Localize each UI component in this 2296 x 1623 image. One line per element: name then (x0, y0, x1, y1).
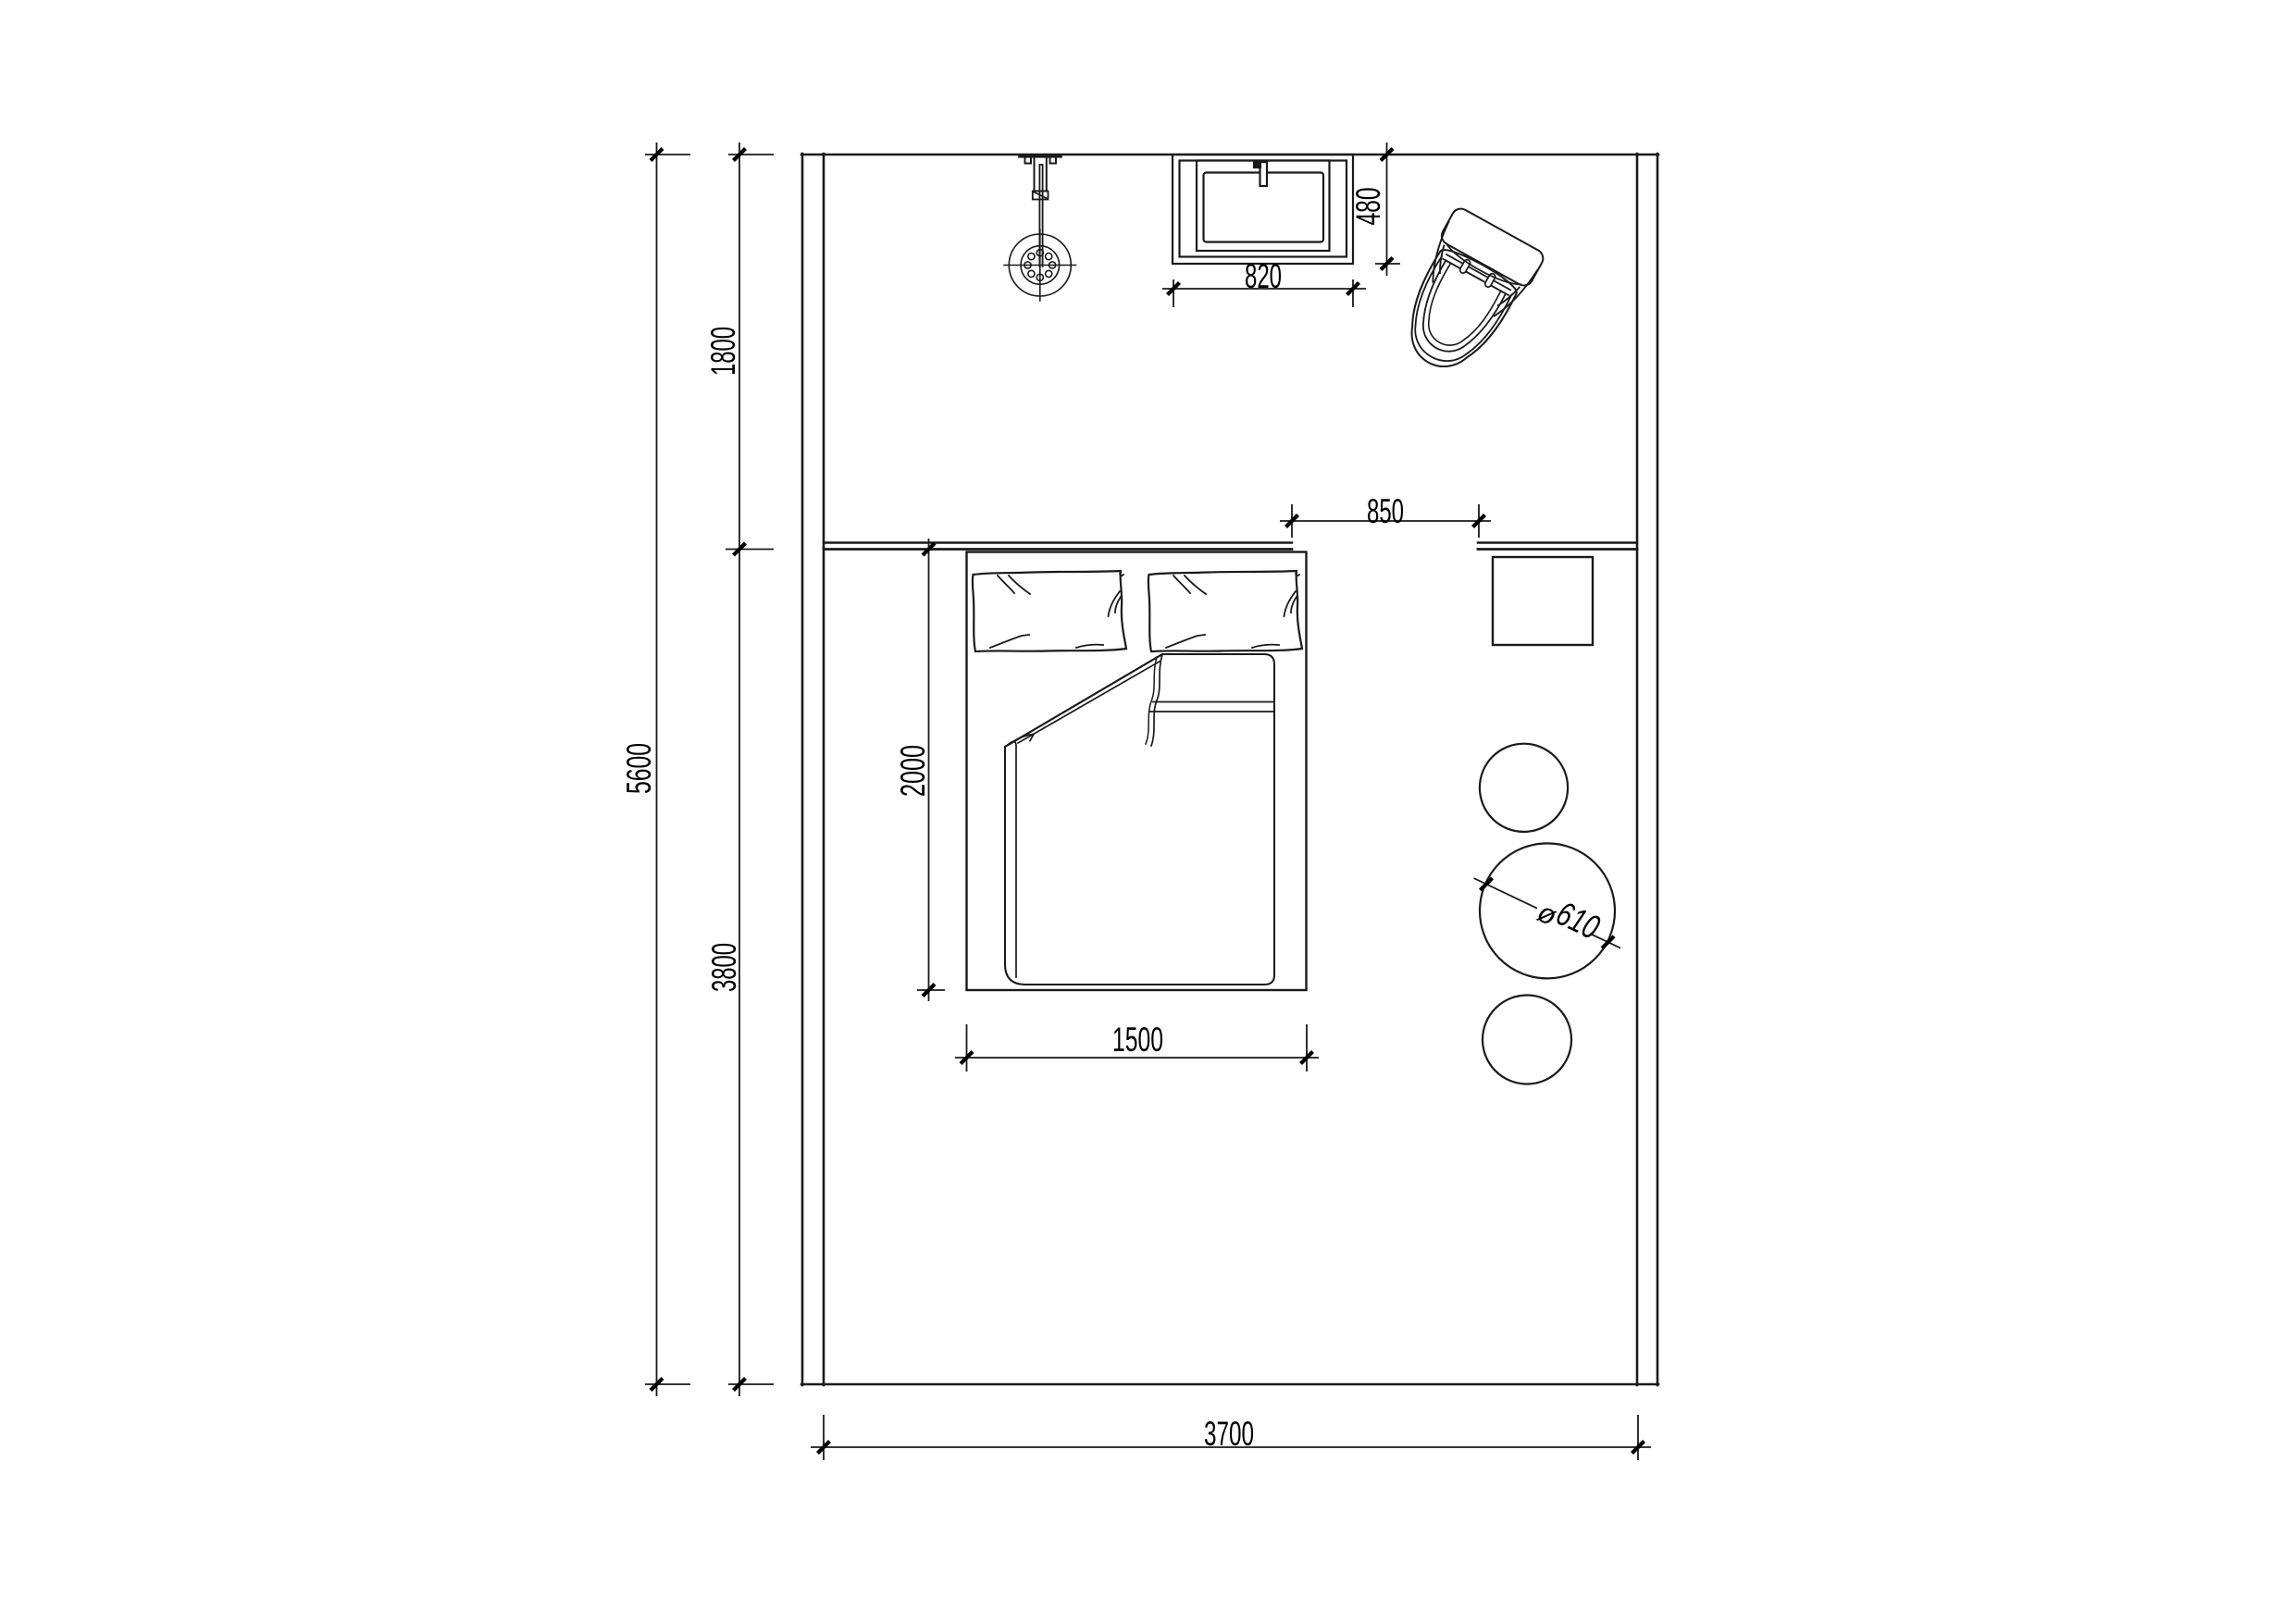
svg-text:480: 480 (1349, 188, 1387, 226)
svg-text:3700: 3700 (1204, 1415, 1254, 1453)
svg-text:2000: 2000 (894, 745, 932, 797)
svg-text:3800: 3800 (705, 943, 743, 992)
svg-text:1800: 1800 (704, 327, 742, 376)
svg-text:850: 850 (1367, 492, 1404, 530)
svg-text:5600: 5600 (620, 743, 658, 794)
svg-text:820: 820 (1245, 257, 1282, 295)
svg-text:1500: 1500 (1112, 1021, 1163, 1059)
